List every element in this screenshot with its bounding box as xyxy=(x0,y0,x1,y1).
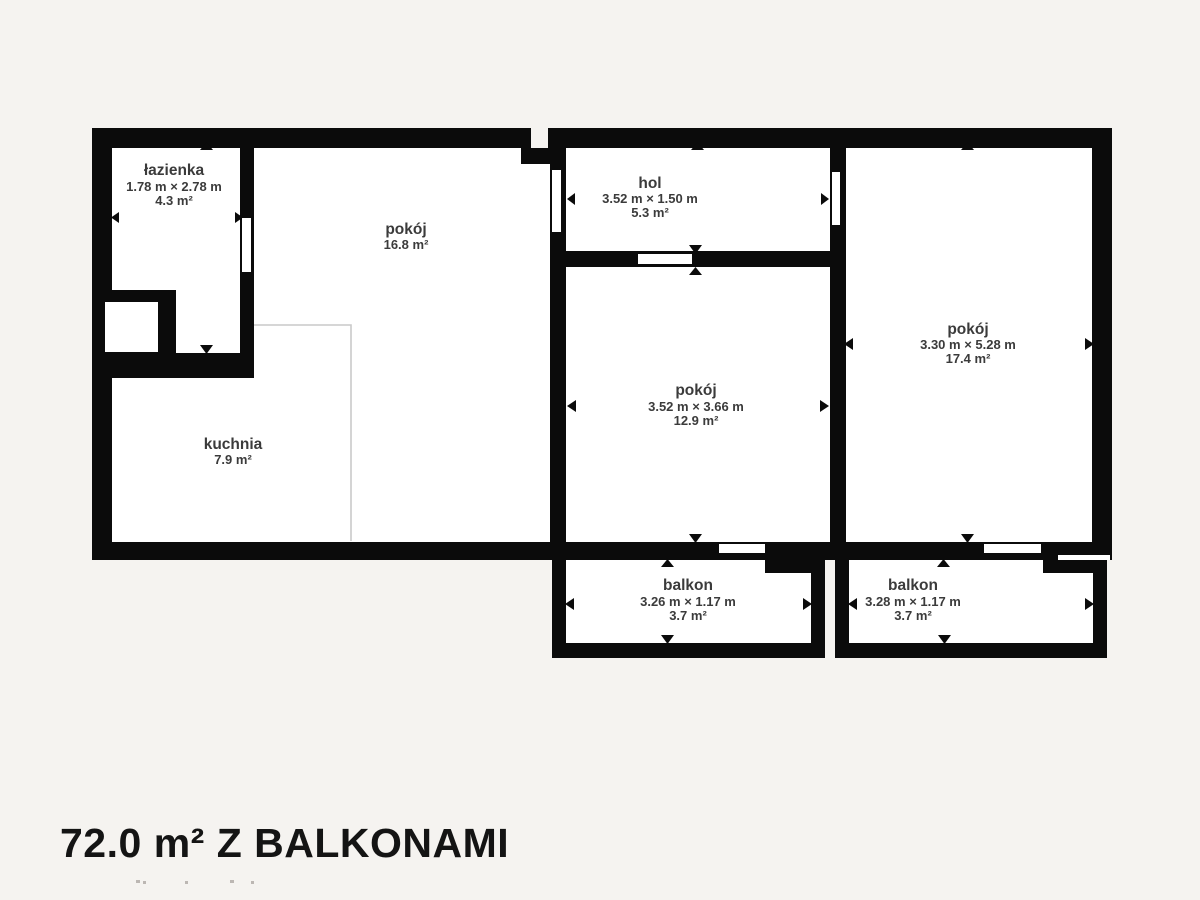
shaft-opening xyxy=(105,302,158,352)
room-dimensions: 3.26 m × 1.17 m xyxy=(640,594,736,609)
plan-title: 72.0 m² Z BALKONAMI xyxy=(60,820,509,866)
room-name: pokój xyxy=(385,221,426,238)
floor-plan-page: łazienka 1.78 m × 2.78 m 4.3 m² pokój 16… xyxy=(0,0,1200,900)
room-area: 3.7 m² xyxy=(894,608,932,623)
room-name: łazienka xyxy=(144,162,205,179)
room-label-pokoj-left: pokój 16.8 m² xyxy=(384,221,429,252)
dot xyxy=(230,880,234,883)
wall-below-bathroom xyxy=(158,353,254,378)
room-name: balkon xyxy=(663,577,713,594)
room-dimensions: 3.28 m × 1.17 m xyxy=(865,594,961,609)
room-dimensions: 1.78 m × 2.78 m xyxy=(126,179,222,194)
wall-balcony-left-west xyxy=(552,554,566,658)
wall-right xyxy=(1092,128,1112,560)
dot xyxy=(251,881,254,884)
wall-bottom xyxy=(92,542,1112,560)
wall-balcony-right-east xyxy=(1093,568,1107,658)
room-area: 16.8 m² xyxy=(384,237,429,252)
dot xyxy=(136,880,140,883)
room-area: 4.3 m² xyxy=(155,193,193,208)
room-area: 17.4 m² xyxy=(946,351,991,366)
room-dimensions: 3.52 m × 1.50 m xyxy=(602,191,698,206)
room-name: balkon xyxy=(888,577,938,594)
room-name: pokój xyxy=(947,321,988,338)
room-name: hol xyxy=(638,175,661,192)
dot xyxy=(185,881,188,884)
wall-top-step xyxy=(521,148,551,164)
room-name: pokój xyxy=(675,382,716,399)
wall-balcony-left-south xyxy=(552,643,825,658)
room-area: 3.7 m² xyxy=(669,608,707,623)
room-area: 12.9 m² xyxy=(674,413,719,428)
wall-hall-bottom xyxy=(550,251,846,267)
room-area: 5.3 m² xyxy=(631,205,669,220)
hall-left-door-opening xyxy=(552,170,561,232)
floor-plan: łazienka 1.78 m × 2.78 m 4.3 m² pokój 16… xyxy=(0,0,1200,900)
room-dimensions: 3.30 m × 5.28 m xyxy=(920,337,1016,352)
balcony-left-door-opening xyxy=(719,544,765,553)
top-wall-notch-gap xyxy=(531,128,548,148)
room-dimensions: 3.52 m × 3.66 m xyxy=(648,399,744,414)
wall-balcony-right-south xyxy=(835,643,1107,658)
hall-bottom-door-opening xyxy=(638,254,692,264)
room-name: kuchnia xyxy=(204,436,263,453)
balcony-right-door-opening xyxy=(984,544,1041,553)
dot xyxy=(143,881,146,884)
hall-right-door-opening xyxy=(832,172,840,225)
balcony-right-notch-slit xyxy=(1058,555,1110,560)
room-area: 7.9 m² xyxy=(214,452,252,467)
bathroom-door-opening xyxy=(242,218,251,272)
wall-balcony-right-west xyxy=(835,554,849,658)
wall-balcony-left-east xyxy=(811,568,825,658)
